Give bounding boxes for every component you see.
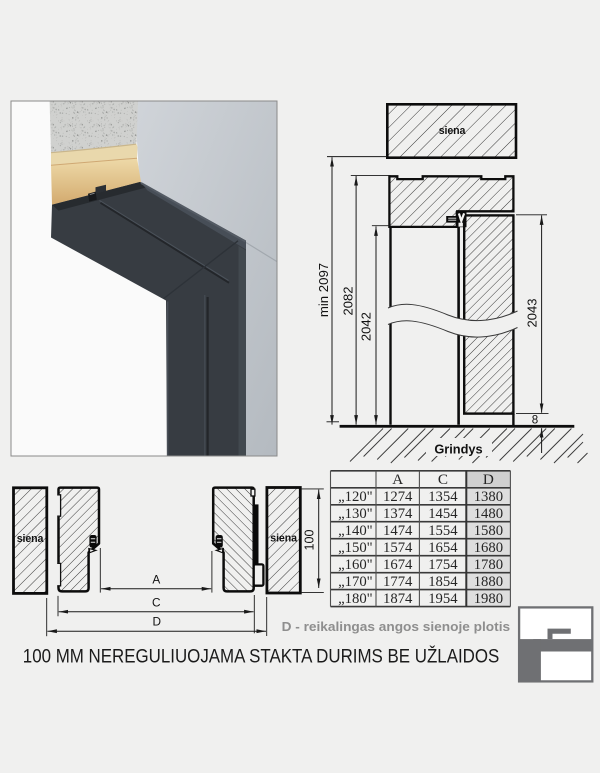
svg-text:1880: 1880 (474, 574, 503, 590)
svg-text:100 MM NEREGULIUOJAMA STAKTA D: 100 MM NEREGULIUOJAMA STAKTA DURIMS BE U… (23, 644, 500, 667)
svg-text:Grindys: Grindys (434, 442, 482, 457)
svg-text:„130": „130" (338, 506, 373, 522)
svg-text:„120": „120" (338, 489, 373, 505)
svg-text:1374: 1374 (383, 506, 413, 522)
svg-text:1954: 1954 (428, 591, 458, 607)
svg-text:siena: siena (439, 125, 466, 137)
svg-text:siena: siena (17, 533, 44, 545)
svg-text:„180": „180" (338, 591, 373, 607)
svg-text:1274: 1274 (383, 489, 413, 505)
svg-text:1574: 1574 (383, 540, 413, 556)
svg-text:1774: 1774 (383, 574, 413, 590)
svg-text:1674: 1674 (383, 557, 413, 573)
svg-text:1680: 1680 (474, 540, 503, 556)
svg-text:1754: 1754 (428, 557, 458, 573)
svg-text:1654: 1654 (428, 540, 458, 556)
svg-text:1474: 1474 (383, 523, 413, 539)
svg-text:100: 100 (303, 529, 317, 550)
svg-text:C: C (438, 471, 448, 488)
svg-text:1354: 1354 (428, 489, 458, 505)
svg-text:D: D (153, 615, 162, 629)
svg-text:siena: siena (270, 532, 297, 544)
svg-text:1854: 1854 (428, 574, 458, 590)
svg-text:1454: 1454 (428, 506, 458, 522)
svg-text:1380: 1380 (474, 489, 503, 505)
svg-text:2043: 2043 (525, 299, 540, 328)
svg-text:„160": „160" (338, 557, 373, 573)
svg-text:A: A (152, 573, 160, 587)
svg-text:min 2097: min 2097 (316, 263, 331, 317)
svg-text:1554: 1554 (428, 523, 458, 539)
svg-text:2042: 2042 (358, 312, 373, 341)
svg-text:1780: 1780 (474, 557, 503, 573)
svg-text:D: D (483, 471, 494, 488)
svg-text:C: C (152, 595, 161, 609)
svg-text:8: 8 (532, 413, 538, 426)
svg-text:„170": „170" (338, 574, 373, 590)
svg-text:1580: 1580 (474, 523, 503, 539)
svg-text:„150": „150" (338, 540, 373, 556)
svg-text:1480: 1480 (474, 506, 503, 522)
svg-text:„140": „140" (338, 523, 373, 539)
svg-text:1874: 1874 (383, 591, 413, 607)
svg-text:D - reikalingas angos sienoje: D - reikalingas angos sienoje plotis (282, 619, 511, 634)
svg-text:1980: 1980 (474, 591, 503, 607)
svg-text:2082: 2082 (340, 287, 355, 316)
svg-text:A: A (392, 471, 403, 488)
